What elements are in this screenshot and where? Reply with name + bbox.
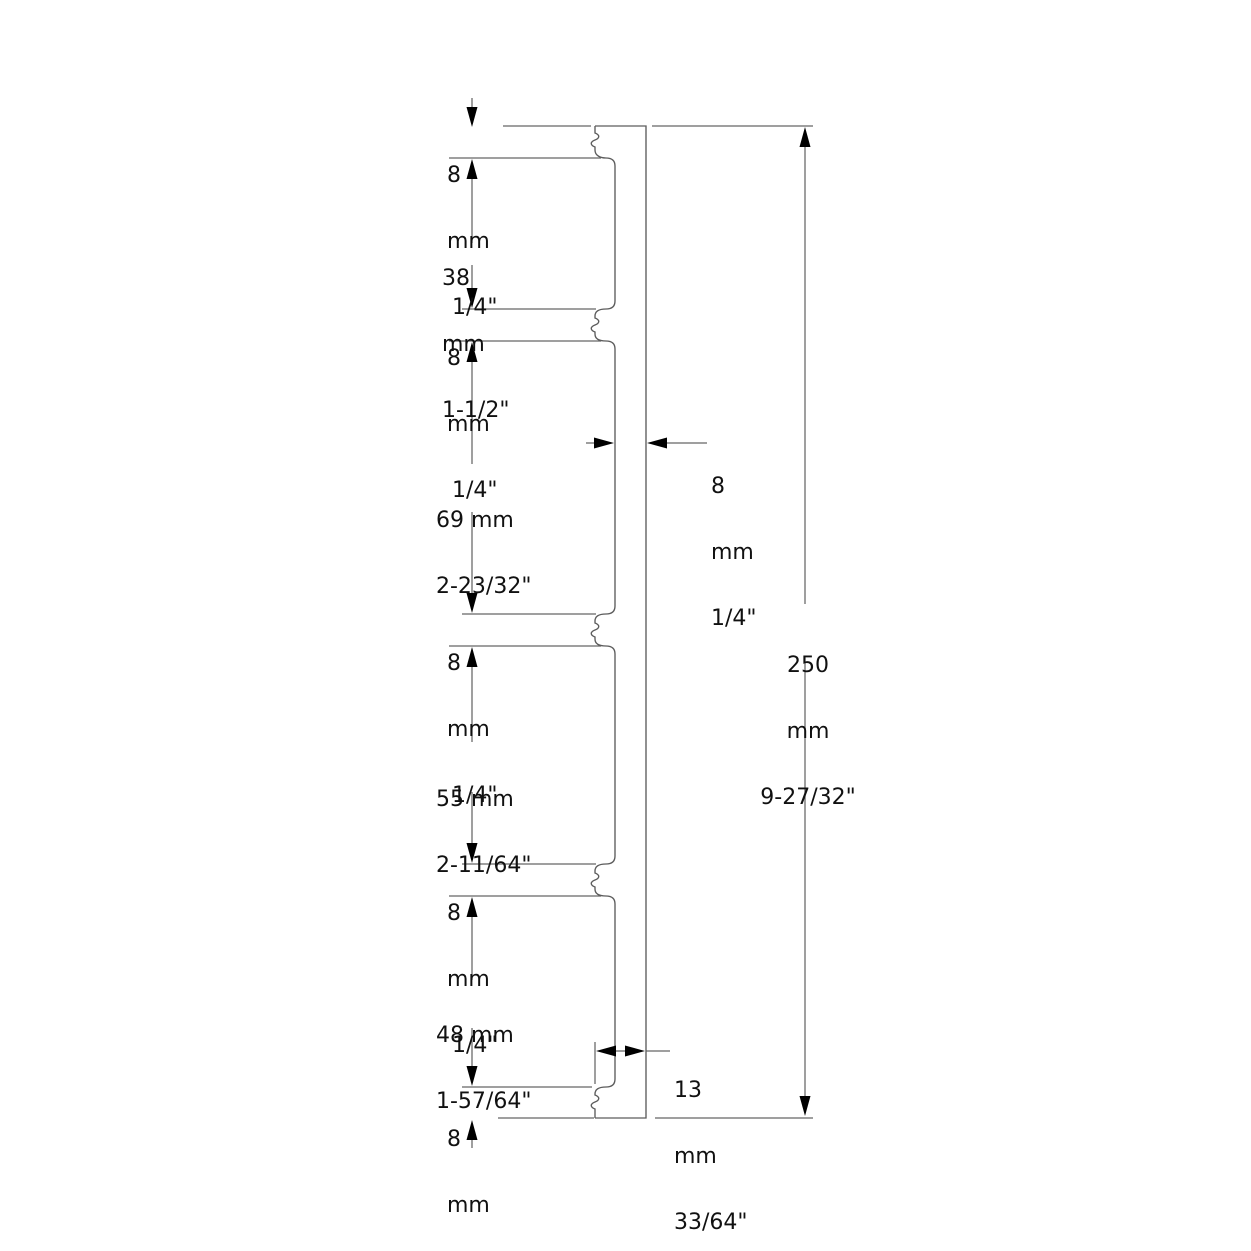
arrow-down-icon [800, 1096, 811, 1116]
arrow-left-icon [596, 1046, 616, 1057]
dim-value-inch: 33/64" [674, 1212, 748, 1234]
dim-value-mm: 48 mm [436, 1025, 531, 1047]
dim-unit: mm [447, 719, 498, 741]
dim-value-mm: 250 [738, 655, 878, 677]
dim-value-mm: 8 [711, 476, 757, 498]
profile-outline [591, 126, 646, 1118]
dim-value-mm: 8 [447, 903, 498, 925]
dim-value-mm: 69 mm [436, 510, 531, 532]
dim-value-mm: 8 [447, 653, 498, 675]
dim-value-mm: 38 [442, 268, 509, 290]
dim-value-mm: 55 mm [436, 789, 531, 811]
dim-unit: mm [447, 1195, 498, 1217]
arrow-right-icon [625, 1046, 645, 1057]
dim-value-mm: 8 [447, 1129, 498, 1151]
dim-value-inch: 9-27/32" [738, 787, 878, 809]
arrow-left-icon [647, 438, 667, 449]
dim-unit: mm [674, 1146, 748, 1168]
dim-label-bottom-rib: 8 mm 1/4" [447, 1085, 498, 1251]
dim-label-overall-height: 250 mm 9-27/32" [738, 611, 878, 853]
dim-unit: mm [738, 721, 878, 743]
dim-unit: mm [447, 414, 498, 436]
profile-top-back-bottom-edge [595, 126, 646, 1118]
dim-unit: mm [711, 542, 757, 564]
dim-label-rib-thickness: 13 mm 33/64" [674, 1036, 748, 1251]
dim-value-mm: 8 [447, 165, 498, 187]
dim-value-mm: 13 [674, 1080, 748, 1102]
arrow-up-icon [800, 127, 811, 147]
profile-drawing [0, 0, 1251, 1251]
dim-value-inch: 2-23/32" [436, 576, 531, 598]
dimension-drawing-canvas: 8 mm 1/4" 38 mm 1-1/2" 8 mm 1/4" 69 mm 2… [0, 0, 1251, 1251]
arrow-right-icon [594, 438, 614, 449]
dim-value-mm: 8 [447, 348, 498, 370]
profile-front-face [591, 126, 615, 1118]
